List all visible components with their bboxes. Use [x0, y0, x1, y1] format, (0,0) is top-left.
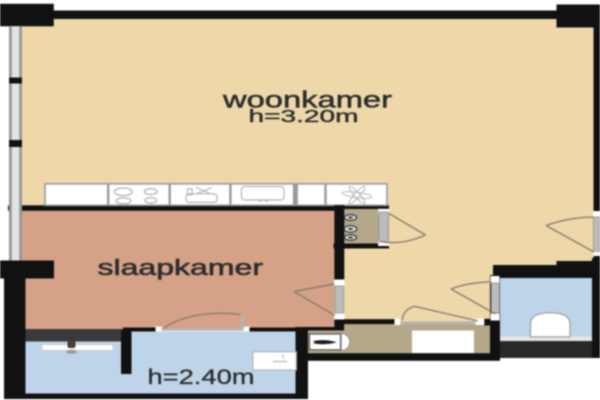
svg-text:h=3.20m: h=3.20m [249, 106, 359, 126]
svg-text:slaapkamer: slaapkamer [98, 255, 264, 280]
svg-text:h=2.40m: h=2.40m [148, 365, 255, 389]
